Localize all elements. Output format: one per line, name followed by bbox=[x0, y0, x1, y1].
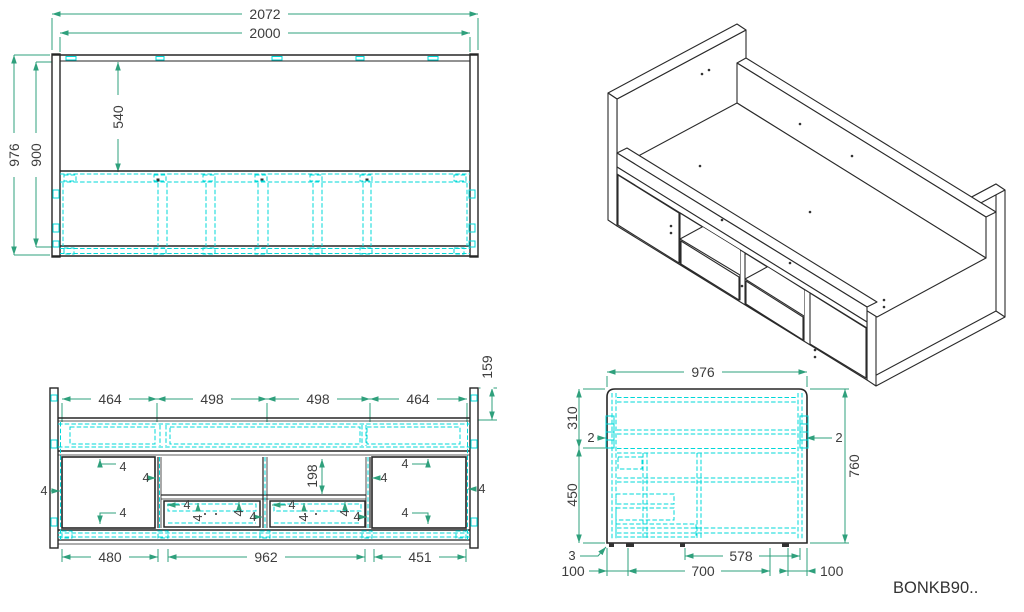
left-door bbox=[62, 457, 155, 528]
hidden-lines bbox=[53, 57, 475, 255]
dim-foot-inset-rear: 100 bbox=[820, 563, 844, 579]
end-panel-outline bbox=[607, 389, 807, 547]
gap-label: 4 bbox=[297, 514, 311, 521]
foot bbox=[782, 543, 789, 547]
dim-bay-outer-right: 464 bbox=[406, 391, 430, 407]
dim-overall-height: 976 bbox=[6, 143, 22, 167]
right-end-panel bbox=[470, 54, 478, 257]
dim-bay-inner-left: 498 bbox=[200, 391, 224, 407]
dim-panel-gap-right: 2 bbox=[835, 430, 842, 445]
gap-label: 4 bbox=[381, 471, 388, 485]
dim-depth: 976 bbox=[691, 364, 715, 380]
rail-connector-blocks bbox=[64, 175, 466, 181]
dim-overall-width: 2072 bbox=[249, 6, 280, 22]
gap-label: 4 bbox=[402, 457, 409, 471]
dim-rear-span: 578 bbox=[729, 548, 753, 564]
gap-label: 4 bbox=[402, 506, 409, 520]
gap-label: 4 bbox=[232, 509, 246, 516]
dim-bay-outer-left: 464 bbox=[98, 391, 122, 407]
gap-label: 4 bbox=[338, 509, 352, 516]
dim-right-door-width: 451 bbox=[408, 549, 432, 565]
gap-label: 4 bbox=[354, 510, 361, 524]
isometric-view bbox=[608, 24, 1005, 386]
dim-top-offset: 159 bbox=[479, 355, 495, 379]
dim-inner-height: 900 bbox=[28, 143, 44, 167]
bed-structure bbox=[52, 54, 478, 257]
gap-label: 4 bbox=[120, 506, 127, 520]
panel-connector-marks bbox=[53, 190, 475, 247]
dimension-labels: 2072 2000 976 900 540 bbox=[6, 6, 288, 177]
dim-foot-height: 3 bbox=[568, 548, 575, 563]
technical-drawing-page: 2072 2000 976 900 540 bbox=[0, 0, 1024, 612]
cabin-bed-drawing: 2072 2000 976 900 540 bbox=[0, 0, 1024, 612]
dim-panel-gap-left: 2 bbox=[587, 430, 594, 445]
gap-label: 4 bbox=[41, 484, 48, 498]
top-connector-marks bbox=[66, 57, 438, 61]
dim-niche-opening-height: 198 bbox=[304, 464, 320, 488]
bed-structure bbox=[50, 388, 478, 548]
dim-upper-panel-height: 540 bbox=[110, 105, 126, 129]
dim-niche-width: 962 bbox=[254, 549, 278, 565]
foot bbox=[626, 543, 634, 547]
gap-label: 4 bbox=[250, 510, 257, 524]
front-detail-view: 464 498 498 464 159 198 480 962 451 4 4 … bbox=[41, 345, 497, 565]
gap-label: 4 bbox=[191, 514, 205, 521]
dim-foot-inset-front: 100 bbox=[561, 563, 585, 579]
foot bbox=[609, 543, 614, 547]
gap-label: 4 bbox=[184, 498, 191, 512]
gap-label: 4 bbox=[143, 471, 150, 485]
side-section-view: 976 310 450 760 2 2 3 100 700 578 100 bbox=[561, 364, 862, 579]
dim-foot-spacing: 700 bbox=[691, 563, 715, 579]
divider-hidden-edges bbox=[63, 183, 467, 246]
dim-lower-section: 450 bbox=[564, 483, 580, 507]
right-door bbox=[372, 457, 466, 528]
gap-label: 4 bbox=[479, 482, 486, 496]
dimension-lines bbox=[14, 14, 478, 255]
dim-inner-width: 2000 bbox=[249, 25, 280, 41]
gap-label: 4 bbox=[289, 498, 296, 512]
dim-bay-inner-right: 498 bbox=[306, 391, 330, 407]
dim-interior-height: 760 bbox=[846, 454, 862, 478]
foot bbox=[680, 543, 685, 547]
dim-left-door-width: 480 bbox=[98, 549, 122, 565]
dim-upper-section: 310 bbox=[564, 406, 580, 430]
product-code: BONKB90.. bbox=[893, 579, 978, 597]
gap-label: 4 bbox=[120, 460, 127, 474]
rear-elevation-view: 2072 2000 976 900 540 bbox=[6, 6, 478, 257]
